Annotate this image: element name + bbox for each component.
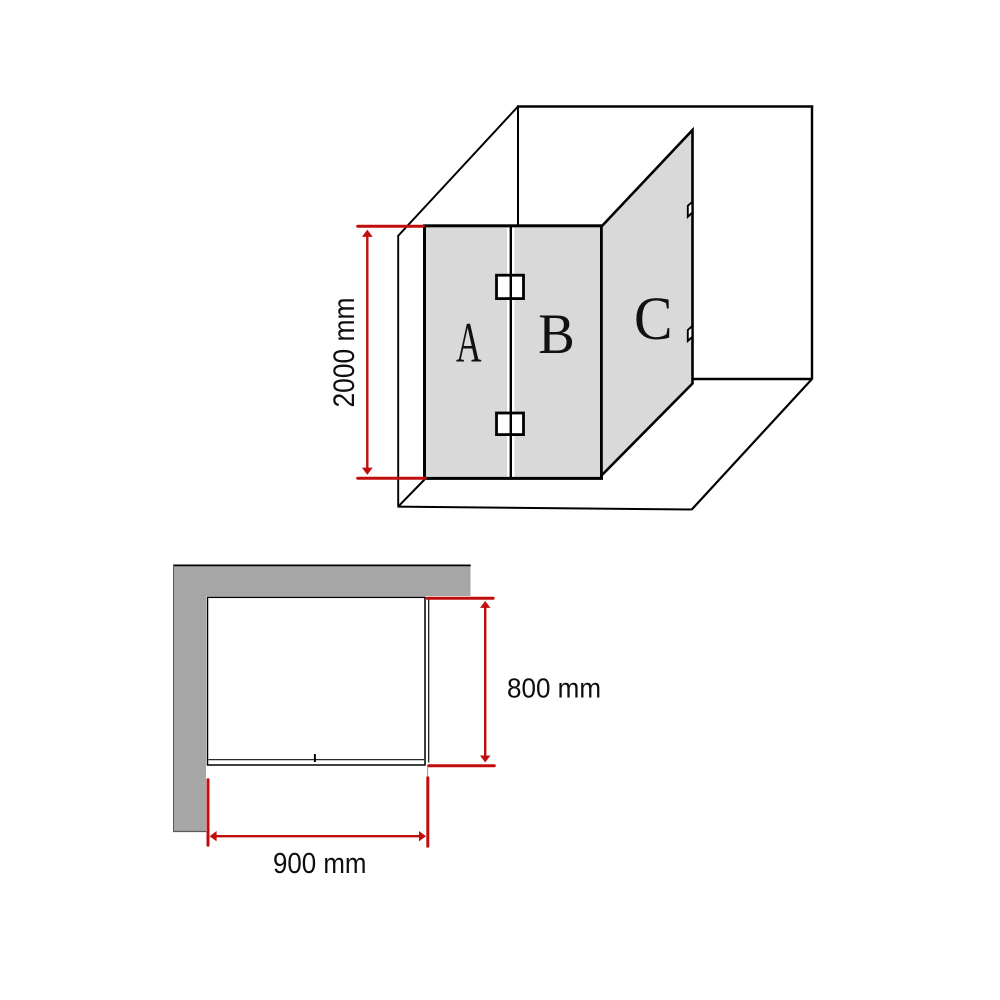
svg-text:A: A — [456, 311, 482, 374]
svg-text:800 mm: 800 mm — [507, 673, 601, 704]
svg-text:2000 mm: 2000 mm — [328, 298, 361, 408]
svg-text:C: C — [634, 286, 673, 353]
svg-text:900 mm: 900 mm — [273, 848, 367, 880]
svg-text:B: B — [538, 303, 575, 366]
